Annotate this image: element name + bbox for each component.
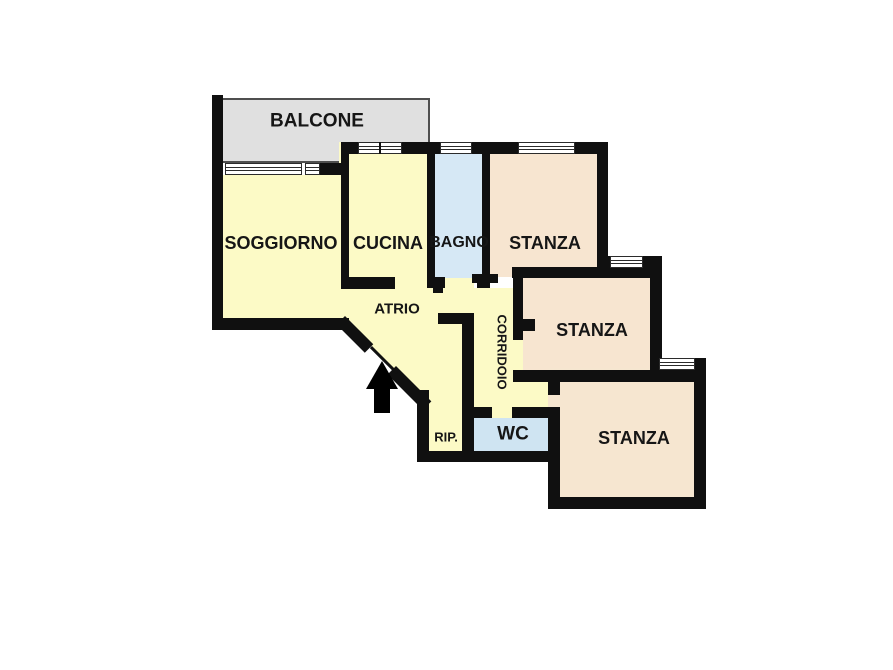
room-label-wc: WC (497, 425, 529, 444)
entrance-arrow-shaft (374, 389, 390, 413)
floor-plan: BALCONE SOGGIORNO CUCINA BAGNO STANZA ST… (0, 0, 893, 670)
wall-stanza-middle-door-jamb (523, 319, 535, 331)
wall-cucina-bottom (341, 277, 395, 289)
room-label-stanza-top: STANZA (509, 234, 581, 252)
room-label-atrio: ATRIO (374, 302, 420, 317)
wall-bagno-stanza-top (482, 142, 490, 283)
room-label-stanza-bottom: STANZA (598, 429, 670, 447)
wall-stanza-bottom-left-upper (548, 382, 560, 395)
window-stanza-bottom (659, 358, 695, 370)
room-label-soggiorno: SOGGIORNO (224, 234, 337, 252)
wall-bottom-band (417, 451, 560, 462)
wall-stanza-middle-bottom (513, 370, 662, 382)
room-label-balcone: BALCONE (270, 112, 364, 131)
wall-wc-top-left (462, 407, 492, 418)
room-label-bagno: BAGNO (429, 235, 489, 251)
wall-bagno-door-jamb (433, 277, 443, 293)
room-label-rip: RIP. (434, 431, 458, 444)
wall-corridoio-left (462, 313, 474, 462)
wall-soggiorno-bottom (212, 318, 349, 330)
wall-left-outer (212, 95, 223, 330)
window-stanza-top (518, 142, 575, 154)
room-stanza-top-fill (490, 154, 608, 277)
wall-cucina-bagno (427, 142, 435, 288)
window-cucina-divider (379, 142, 381, 154)
room-label-stanza-middle: STANZA (556, 321, 628, 339)
wall-stanza-top-door-foot (472, 274, 498, 283)
wall-stanza-middle-left (513, 267, 523, 340)
room-label-cucina: CUCINA (353, 234, 423, 252)
wall-stanza-bottom-right (694, 358, 706, 509)
room-bagno-fill (435, 154, 482, 278)
window-bagno (440, 142, 472, 154)
wall-soggiorno-window-filler (318, 163, 349, 175)
wall-stanza-bottom-bottom (548, 497, 706, 509)
window-soggiorno-1 (225, 163, 302, 175)
room-label-corridoio: CORRIDOIO (496, 314, 509, 389)
window-stanza-middle (610, 256, 643, 268)
wall-corridoio-left-stub (438, 313, 462, 324)
wall-wc-top-right (512, 407, 560, 418)
entrance-arrow-icon (366, 361, 398, 389)
window-soggiorno-2 (305, 163, 320, 175)
